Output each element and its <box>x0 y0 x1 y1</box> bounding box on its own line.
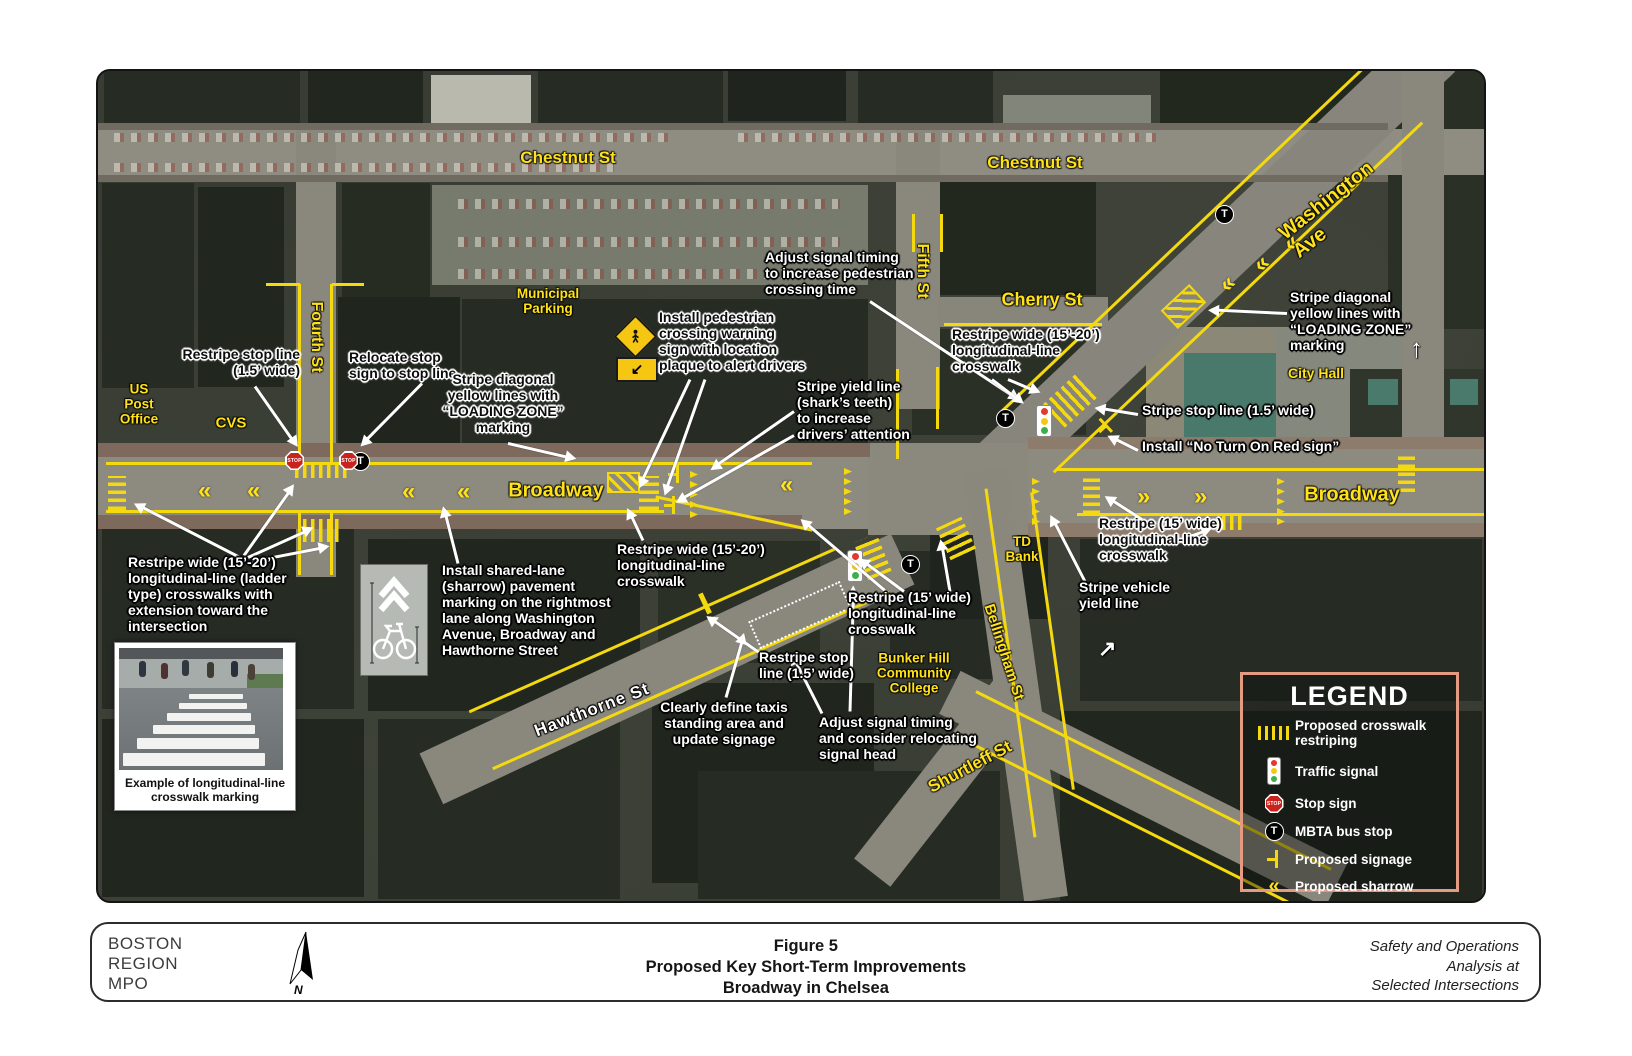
callout-restripe-15-center: Restripe (15’ wide) longitudinal-line cr… <box>848 590 971 638</box>
legend-title: LEGEND <box>1243 681 1456 712</box>
proposed-marking-line <box>106 462 812 465</box>
place-label-us-post-office: US Post Office <box>120 382 158 427</box>
callout-loading-zone-east: Stripe diagonal yellow lines with “LOADI… <box>1290 290 1411 354</box>
road <box>1028 523 1486 537</box>
photo-caption: Example of longitudinal-line crosswalk m… <box>119 770 291 807</box>
crosswalk-restriping-marking <box>1398 456 1415 492</box>
proposed-marking-line <box>936 367 939 429</box>
building-block <box>308 71 423 125</box>
place-label-cvs: CVS <box>216 415 247 432</box>
building-block <box>728 71 846 121</box>
parked-cars <box>458 237 840 247</box>
callout-adjust-signal-north: Adjust signal timing to increase pedestr… <box>765 250 914 298</box>
sharrow-detail-inset <box>360 564 428 676</box>
street-label-chestnut-west: Chestnut St <box>520 148 615 168</box>
legend-panel: LEGEND Proposed crosswalk restriping Tra… <box>1240 672 1459 892</box>
callout-no-turn-on-red: Install “No Turn On Red sign” <box>1142 439 1339 455</box>
figure-page: «««««»»«««TTTTSTOPSTOP Chestnut St Chest… <box>0 0 1632 1056</box>
building-block <box>1368 379 1398 405</box>
callout-restripe-15-east: Restripe (15’ wide) longitudinal-line cr… <box>1099 516 1222 564</box>
callout-adjust-signal-south: Adjust signal timing and consider reloca… <box>819 715 977 763</box>
callout-loading-zone-west: Stripe diagonal yellow lines with “LOADI… <box>428 372 578 436</box>
legend-item-stop: STOP Stop sign <box>1253 794 1456 813</box>
proposed-marking-line <box>1056 468 1486 471</box>
traffic-signal-icon <box>1036 405 1052 437</box>
building-block <box>431 75 531 123</box>
callout-vehicle-yield: Stripe vehicle yield line <box>1079 580 1170 612</box>
proposed-marking-line <box>106 510 664 513</box>
svg-text:N: N <box>294 983 303 996</box>
road <box>1402 71 1444 451</box>
figure-title: Figure 5 Proposed Key Short-Term Improve… <box>646 936 967 999</box>
street-label-fourth: Fourth St <box>307 301 325 372</box>
place-label-bunker-hill: Bunker Hill Community College <box>877 651 951 696</box>
legend-item-sharrow: « Proposed sharrow <box>1253 877 1456 895</box>
mbta-bus-stop-icon: T <box>996 409 1015 428</box>
north-arrow-icon: N <box>280 930 320 996</box>
place-label-city-hall: City Hall <box>1288 365 1344 381</box>
report-title: Safety and Operations Analysis at Select… <box>1370 937 1519 996</box>
crosswalk-example-photo <box>119 648 283 770</box>
arrow-plaque-icon: ↙ <box>616 357 658 382</box>
sharrow-icon: « <box>198 480 211 502</box>
callout-yield-line: Stripe yield line (shark’s teeth) to inc… <box>797 379 910 443</box>
road <box>98 175 1388 182</box>
building-block <box>858 71 993 123</box>
callout-pedestrian-sign: Install pedestrian crossing warning sign… <box>659 310 805 374</box>
yield-line-marking <box>1032 478 1040 525</box>
sharrow-icon: « <box>1249 251 1274 276</box>
sharrow-icon: « <box>247 480 260 502</box>
place-label-td-bank: TD Bank <box>1005 534 1038 564</box>
northeast-arrow-icon: ↗ <box>1098 636 1116 662</box>
callout-restripe-stop-line-nw: Restripe stop line (1.5’ wide) <box>172 347 300 379</box>
street-label-cherry: Cherry St <box>1001 290 1082 311</box>
sharrow-icon: » <box>1137 486 1150 508</box>
proposed-sharrow-icon: « <box>1268 877 1279 895</box>
legend-item-mbta: T MBTA bus stop <box>1253 822 1456 841</box>
sharrow-marking-icon <box>365 569 423 671</box>
crosswalk-restriping-icon <box>1258 726 1290 740</box>
place-label-municipal-parking: Municipal Parking <box>517 286 579 316</box>
proposed-marking-line <box>330 284 333 462</box>
street-label-fifth: Fifth St <box>913 243 931 298</box>
up-arrow-icon: ↑ <box>1410 333 1423 364</box>
crosswalk-example-inset: Example of longitudinal-line crosswalk m… <box>114 642 296 811</box>
parked-cars <box>114 133 674 142</box>
street-label-broadway-west: Broadway <box>508 480 604 503</box>
proposed-marking-line <box>266 283 300 286</box>
stop-sign-icon: STOP <box>339 451 358 470</box>
boston-region-mpo-logo: BOSTON REGION MPO <box>108 934 182 994</box>
proposed-marking-line <box>332 283 364 286</box>
callout-taxi-area: Clearly define taxis standing area and u… <box>658 700 790 748</box>
road <box>98 123 1388 130</box>
callout-restripe-wide-center: Restripe wide (15’-20’) longitudinal-lin… <box>617 542 765 590</box>
building-block <box>104 71 300 123</box>
building-block <box>1450 379 1478 405</box>
legend-item-signage: Proposed signage <box>1253 850 1456 868</box>
crosswalk-restriping-marking <box>108 476 126 510</box>
callout-restripe-wide-cherry: Restripe wide (15’-20’) longitudinal-lin… <box>952 327 1100 375</box>
callout-ladder-crosswalks: Restripe wide (15’-20’) longitudinal-lin… <box>128 555 287 635</box>
building-block <box>538 71 723 123</box>
mbta-bus-stop-icon: T <box>901 555 920 574</box>
stop-sign-icon: STOP <box>1265 794 1284 813</box>
sharrow-icon: « <box>402 481 415 503</box>
legend-item-signal: Traffic signal <box>1253 757 1456 785</box>
legend-item-crosswalk: Proposed crosswalk restriping <box>1253 718 1456 748</box>
yield-line-marking <box>844 468 852 515</box>
proposed-marking-line <box>940 214 943 252</box>
footer-bar: BOSTON REGION MPO N Figure 5 Proposed Ke… <box>90 922 1541 1002</box>
proposed-signage-icon <box>1267 850 1281 868</box>
callout-arrow <box>254 386 297 446</box>
street-label-chestnut-east: Chestnut St <box>987 153 1082 173</box>
callout-restripe-stop-south: Restripe stop line (1.5’ wide) <box>759 650 854 682</box>
sharrow-icon: « <box>457 481 470 503</box>
sharrow-icon: » <box>1194 486 1207 508</box>
callout-stripe-stop-line-east: Stripe stop line (1.5’ wide) <box>1142 403 1314 419</box>
parked-cars <box>458 199 840 209</box>
map-panel: «««««»»«««TTTTSTOPSTOP Chestnut St Chest… <box>96 69 1486 903</box>
traffic-signal-icon <box>1267 757 1281 785</box>
sharrow-icon: « <box>780 474 793 496</box>
proposed-marking-line <box>298 513 301 575</box>
mbta-bus-stop-icon: T <box>1265 822 1284 841</box>
parked-cars <box>738 133 1158 142</box>
street-label-broadway-east: Broadway <box>1304 484 1400 507</box>
crosswalk-restriping-marking <box>1222 516 1245 530</box>
stop-sign-icon: STOP <box>285 451 304 470</box>
callout-sharrow-note: Install shared-lane (sharrow) pavement m… <box>442 563 611 659</box>
mbta-bus-stop-icon: T <box>1215 205 1234 224</box>
yield-line-marking <box>1277 478 1285 525</box>
